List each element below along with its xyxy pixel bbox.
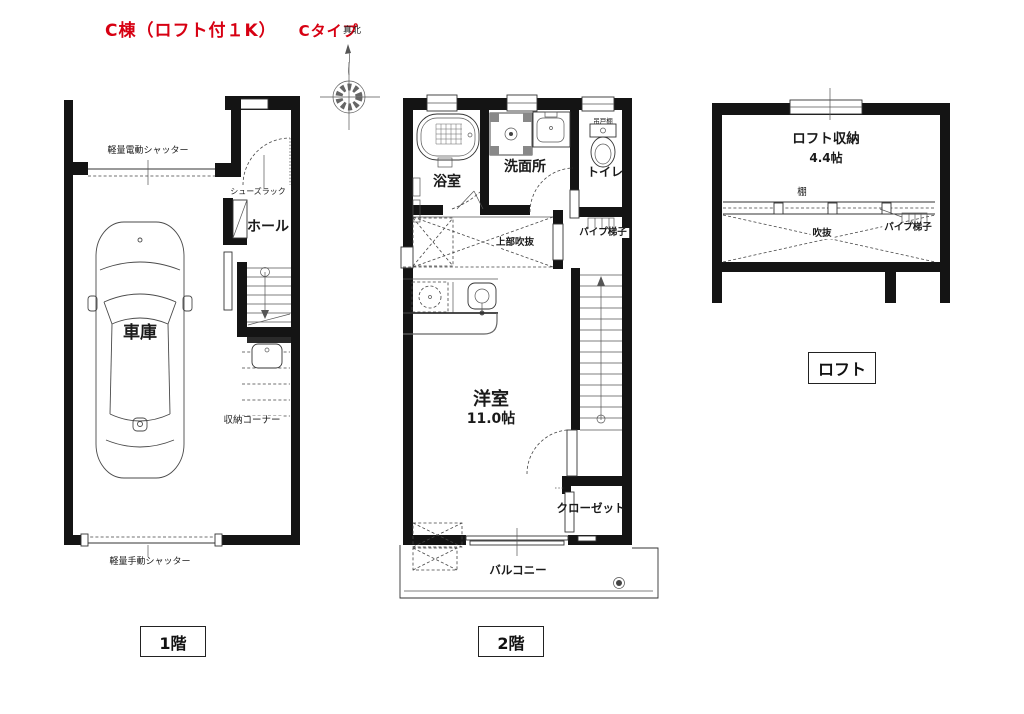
loft-storage-label: ロフト収納 [792,133,860,147]
loft-tag: ロフト [808,352,876,384]
closet-label: クローゼット [557,503,626,515]
void-above-label: 上部吹抜 [494,238,536,248]
shelf-label: 棚 [797,188,807,198]
loft-shelf [723,202,935,214]
shoe-rack-label: シューズラック [230,188,286,196]
room-dashed-boxes [413,523,462,570]
floor1-storage-corner [242,337,291,416]
western-room-size-label: 11.0帖 [467,412,516,426]
compass-graphic [320,44,380,130]
floor2-tag: 2階 [478,626,544,657]
toilet-label: トイレ [587,166,623,178]
loft-storage-size-label: 4.4帖 [809,152,842,164]
floor1-hall-door [224,252,232,310]
floor1-electric-shutter [88,160,215,185]
loft-pipe-ladder-label: パイプ梯子 [882,223,934,233]
storage-corner-label: 収納コーナー [221,416,282,426]
garage-label: 車庫 [123,325,157,342]
floor1-staircase [237,262,293,337]
washer-pan [490,113,532,155]
room-door [527,430,577,476]
floor1-plan-drawing [55,88,305,578]
loft-void-label: 吹抜 [810,229,833,239]
western-room-label: 洋室 [473,391,509,409]
floor2-tag-text: 2階 [497,630,524,654]
floor1-manual-shutter [81,534,222,557]
floor2-pipe-ladder-label: パイプ梯子 [577,228,629,238]
room-window-south [466,528,568,556]
manual-shutter-label: 軽量手動シャッター [109,558,190,567]
building-title: C棟（ロフト付１K） [105,21,277,41]
electric-shutter-label: 軽量電動シャッター [107,147,188,156]
floorplan-canvas: C棟（ロフト付１K）Cタイプ 真北 [0,0,1024,714]
bathroom-label: 浴室 [433,175,461,189]
kitchen-counter [403,279,498,334]
floor1-tag-text: 1階 [159,630,186,654]
compass-rose-icon [318,40,388,135]
garage-car [88,222,192,478]
floor1-tag: 1階 [140,626,206,657]
hanging-cupboard-label: 吊戸棚 [593,118,613,125]
loft-plan-drawing [705,85,965,310]
drawing-title: C棟（ロフト付１K）Cタイプ [105,16,359,41]
north-label: 真北 [343,27,361,36]
washroom-label: 洗面所 [504,160,546,174]
vanity-sink [533,112,570,147]
balcony-label: バルコニー [489,565,546,577]
floor2-staircase [580,275,622,430]
loft-tag-text: ロフト [818,356,866,380]
floor1-shoe-rack [233,200,247,238]
floor1-entrance-door [243,138,290,188]
loft-window [790,88,862,120]
hall-label: ホール [247,220,289,234]
